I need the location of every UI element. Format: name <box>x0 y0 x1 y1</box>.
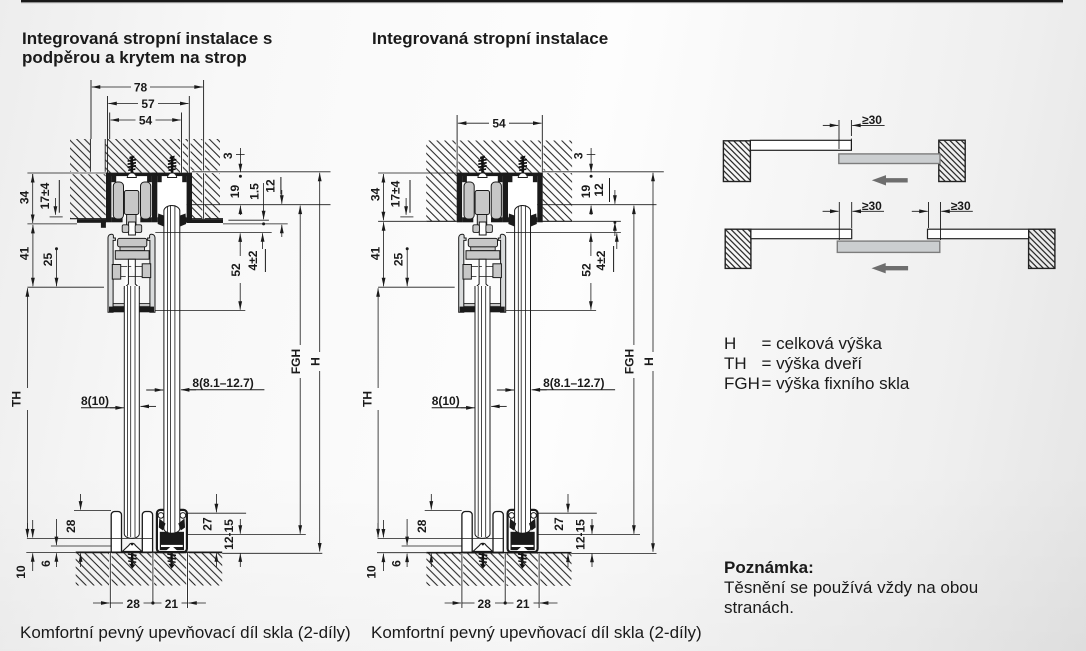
svg-text:25: 25 <box>392 253 406 267</box>
svg-text:H: H <box>642 357 656 366</box>
svg-text:54: 54 <box>492 117 506 131</box>
svg-text:27: 27 <box>201 517 215 531</box>
svg-text:podpěrou a krytem na strop: podpěrou a krytem na strop <box>22 48 247 67</box>
svg-text:8(10): 8(10) <box>81 394 109 408</box>
svg-text:12: 12 <box>592 183 606 197</box>
svg-text:FGH: FGH <box>623 349 637 374</box>
svg-text:6: 6 <box>39 560 53 567</box>
svg-text:52: 52 <box>580 263 594 277</box>
svg-text:41: 41 <box>18 247 32 261</box>
svg-text:78: 78 <box>134 80 148 94</box>
svg-text:28: 28 <box>64 519 78 533</box>
svg-text:17±4: 17±4 <box>389 180 403 207</box>
svg-text:17±4: 17±4 <box>38 182 52 209</box>
svg-text:3: 3 <box>221 152 235 159</box>
svg-text:FGH: FGH <box>289 349 303 374</box>
svg-text:H: H <box>724 334 736 353</box>
svg-text:Těsnění se používá vždy na obo: Těsnění se používá vždy na obou <box>724 578 978 597</box>
svg-text:8(8.1–12.7): 8(8.1–12.7) <box>192 376 253 390</box>
svg-text:= výška dveří: = výška dveří <box>762 354 863 373</box>
svg-text:Poznámka:: Poznámka: <box>724 558 814 577</box>
svg-text:Integrovaná stropní instalace: Integrovaná stropní instalace s <box>22 29 272 48</box>
svg-text:19: 19 <box>228 185 242 199</box>
svg-text:TH: TH <box>360 391 374 407</box>
svg-text:28: 28 <box>127 597 141 611</box>
svg-text:FGH: FGH <box>724 374 760 393</box>
svg-text:52: 52 <box>229 263 243 277</box>
svg-text:TH: TH <box>724 354 747 373</box>
svg-text:4±2: 4±2 <box>246 250 260 270</box>
svg-text:34: 34 <box>18 191 32 205</box>
svg-text:21: 21 <box>516 597 530 611</box>
svg-text:25: 25 <box>41 253 55 267</box>
svg-text:6: 6 <box>390 560 404 567</box>
svg-text:Komfortní pevný upevňovací díl: Komfortní pevný upevňovací díl skla (2-d… <box>20 623 351 642</box>
svg-text:TH: TH <box>10 391 24 407</box>
svg-text:12-15: 12-15 <box>222 519 236 550</box>
svg-text:41: 41 <box>368 247 382 261</box>
svg-text:4±2: 4±2 <box>594 250 608 270</box>
svg-text:Integrovaná stropní instalace: Integrovaná stropní instalace <box>372 29 608 48</box>
svg-text:28: 28 <box>415 519 429 533</box>
svg-text:34: 34 <box>368 188 382 202</box>
svg-text:≥30: ≥30 <box>951 199 971 213</box>
svg-text:12-15: 12-15 <box>574 519 588 550</box>
svg-text:H: H <box>309 357 323 366</box>
svg-text:10: 10 <box>14 565 28 579</box>
svg-text:1.5: 1.5 <box>247 183 261 200</box>
svg-text:57: 57 <box>141 97 155 111</box>
svg-text:= výška fixního skla: = výška fixního skla <box>762 374 910 393</box>
svg-text:= celková výška: = celková výška <box>762 334 883 353</box>
svg-text:12: 12 <box>264 179 278 193</box>
svg-text:10: 10 <box>365 565 379 579</box>
svg-text:≥30: ≥30 <box>862 199 882 213</box>
svg-text:3: 3 <box>572 152 586 159</box>
svg-text:stranách.: stranách. <box>724 598 794 617</box>
svg-text:21: 21 <box>165 597 179 611</box>
svg-text:Komfortní pevný upevňovací díl: Komfortní pevný upevňovací díl skla (2-d… <box>371 623 702 642</box>
svg-text:19: 19 <box>579 185 593 199</box>
svg-text:8(8.1–12.7): 8(8.1–12.7) <box>543 376 604 390</box>
svg-text:≥30: ≥30 <box>862 113 882 127</box>
svg-text:54: 54 <box>139 113 153 127</box>
svg-text:27: 27 <box>552 517 566 531</box>
svg-text:28: 28 <box>478 597 492 611</box>
svg-text:8(10): 8(10) <box>432 394 460 408</box>
